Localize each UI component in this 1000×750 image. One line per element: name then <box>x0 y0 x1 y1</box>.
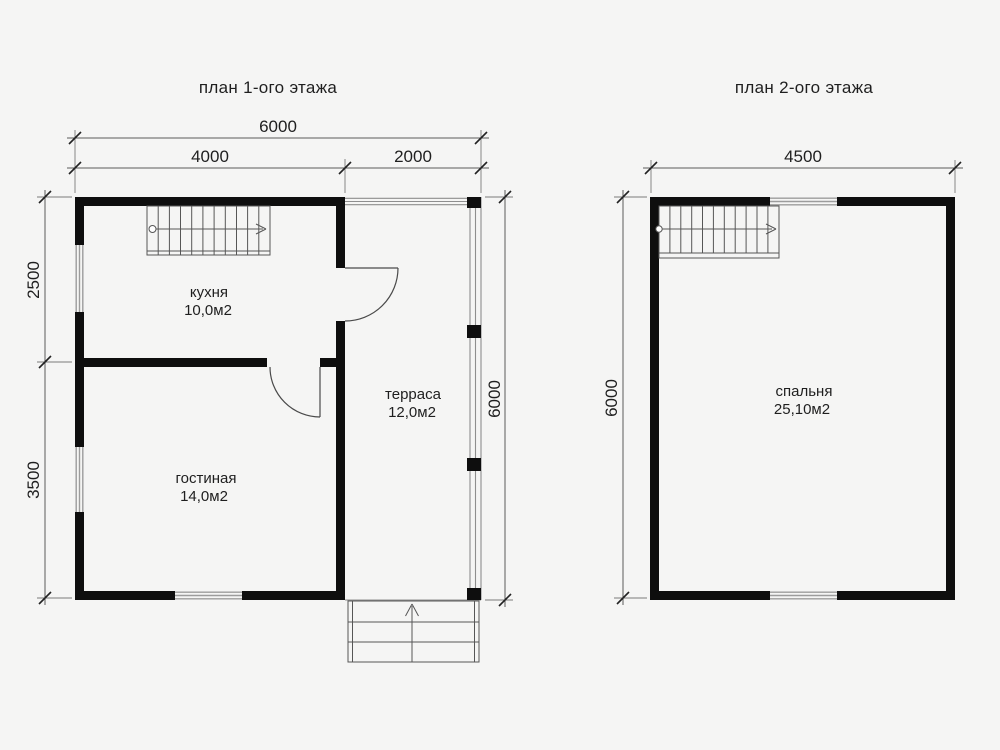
plan1-title: план 1-ого этажа <box>199 78 337 97</box>
bedroom-label: спальня <box>776 383 833 400</box>
plan1-room-labels: кухня 10,0м2 гостиная 14,0м2 терраса 12,… <box>176 284 442 505</box>
window-bedroom-bottom <box>770 592 837 599</box>
plan1-porch-steps <box>348 601 479 662</box>
plan1-stair-treads <box>158 206 259 255</box>
porch-up-arrow <box>406 604 419 662</box>
window-living-bottom <box>175 592 242 599</box>
plan2-dimensions-left: 6000 <box>602 190 647 605</box>
kitchen-area: 10,0м2 <box>184 302 232 319</box>
plan1-dimensions-top: 6000 4000 2000 <box>67 117 489 193</box>
terrace-right-rail <box>470 197 481 600</box>
kitchen-label: кухня <box>190 284 228 301</box>
living-label: гостиная <box>176 470 237 487</box>
plan1-dimensions-right: 6000 <box>485 190 513 607</box>
plan1-dim-terrace-width: 2000 <box>394 147 432 166</box>
plan2-room-labels: спальня 25,10м2 <box>774 383 833 418</box>
plan1-dim-total-width: 6000 <box>259 117 297 136</box>
plan1-stair-direction-arrow <box>149 224 266 234</box>
plan2-stair-direction-arrow <box>656 224 776 234</box>
plan2-dim-total-width: 4500 <box>784 147 822 166</box>
floorplan-canvas: план 1-ого этажа 6000 4000 2000 <box>0 0 1000 750</box>
plan1-doors <box>270 268 398 417</box>
plan1-stairs <box>147 206 270 255</box>
plan1-dim-house-width: 4000 <box>191 147 229 166</box>
plan1-dim-kitchen-depth: 2500 <box>24 261 43 299</box>
bedroom-area: 25,10м2 <box>774 401 830 418</box>
terrace-label: терраса <box>385 386 442 403</box>
living-area: 14,0м2 <box>180 488 228 505</box>
terrace-top-rail <box>345 198 467 204</box>
terrace-area: 12,0м2 <box>388 404 436 421</box>
door-kitchen-terrace <box>345 268 398 321</box>
window-living-left <box>76 447 83 512</box>
window-bedroom-top <box>770 198 837 205</box>
plan2-dim-total-depth: 6000 <box>602 379 621 417</box>
plan1: план 1-ого этажа 6000 4000 2000 <box>24 78 513 662</box>
plan2: план 2-ого этажа 4500 6000 <box>602 78 963 605</box>
plan1-dim-total-depth: 6000 <box>485 380 504 418</box>
plan1-dim-living-depth: 3500 <box>24 461 43 499</box>
plan2-title: план 2-ого этажа <box>735 78 873 97</box>
plan2-stairs <box>656 206 779 258</box>
plan2-dimensions-top: 4500 <box>643 147 963 193</box>
window-kitchen-left <box>76 245 83 312</box>
door-living-room <box>270 367 320 417</box>
plan1-walls <box>75 197 345 600</box>
plan1-dimensions-left: 2500 3500 <box>24 190 72 605</box>
terrace-posts <box>467 197 481 600</box>
